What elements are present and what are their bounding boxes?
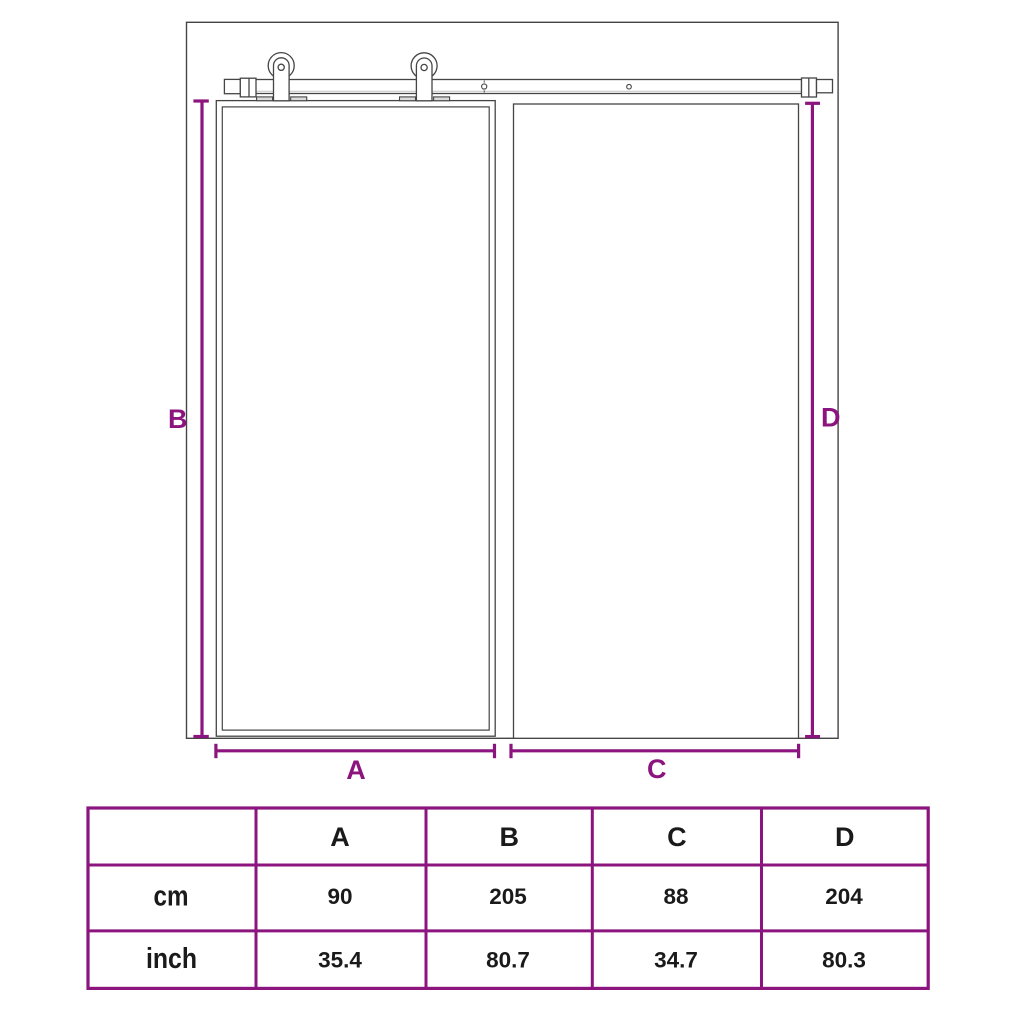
svg-text:205: 205	[489, 884, 527, 909]
svg-text:A: A	[330, 822, 350, 852]
svg-text:80.7: 80.7	[486, 948, 530, 973]
svg-text:204: 204	[825, 884, 863, 909]
svg-text:D: D	[821, 403, 841, 433]
svg-text:D: D	[835, 822, 855, 852]
svg-text:88: 88	[663, 884, 688, 909]
svg-text:inch: inch	[146, 943, 197, 975]
svg-text:B: B	[168, 404, 188, 434]
svg-text:90: 90	[327, 884, 352, 909]
svg-text:A: A	[346, 755, 366, 785]
svg-text:C: C	[667, 822, 687, 852]
svg-text:35.4: 35.4	[318, 948, 362, 973]
svg-text:B: B	[499, 822, 519, 852]
svg-text:34.7: 34.7	[654, 948, 698, 973]
svg-text:C: C	[647, 754, 667, 784]
svg-text:80.3: 80.3	[822, 948, 866, 973]
svg-text:cm: cm	[154, 881, 189, 913]
